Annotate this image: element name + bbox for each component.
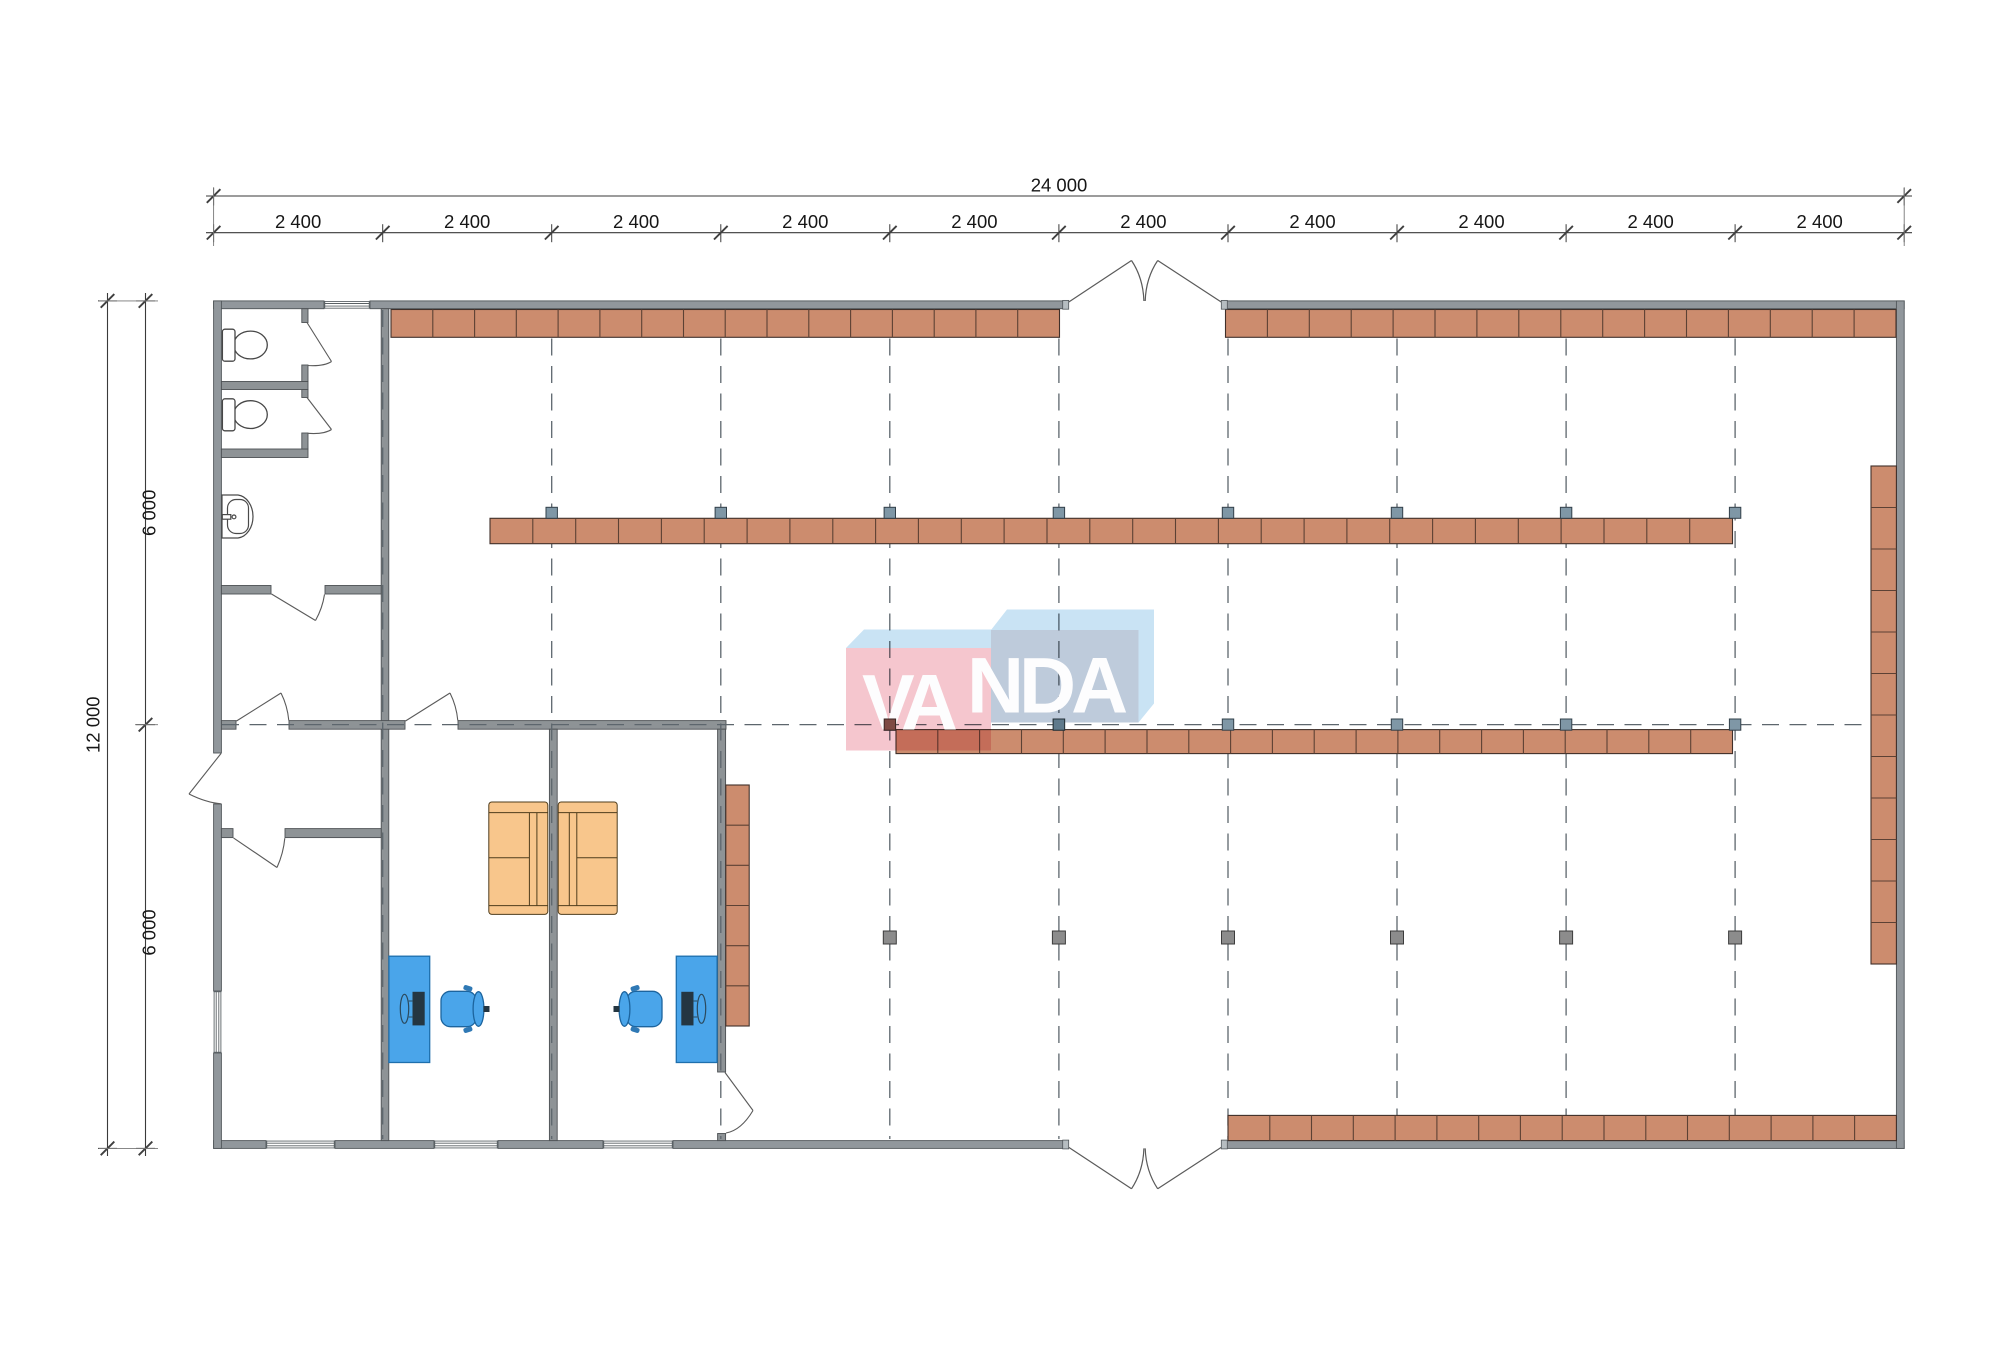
svg-text:2 400: 2 400: [1289, 211, 1335, 232]
svg-text:2 400: 2 400: [1627, 211, 1673, 232]
svg-text:6 000: 6 000: [139, 490, 160, 536]
svg-text:2 400: 2 400: [275, 211, 321, 232]
svg-text:2 400: 2 400: [1797, 211, 1843, 232]
svg-text:2 400: 2 400: [613, 211, 659, 232]
svg-text:2 400: 2 400: [951, 211, 997, 232]
svg-text:NDA: NDA: [967, 641, 1126, 730]
svg-text:2 400: 2 400: [1458, 211, 1504, 232]
svg-text:2 400: 2 400: [782, 211, 828, 232]
svg-text:2 400: 2 400: [444, 211, 490, 232]
svg-text:12 000: 12 000: [83, 696, 104, 753]
svg-text:2 400: 2 400: [1120, 211, 1166, 232]
svg-text:6 000: 6 000: [139, 909, 160, 955]
svg-text:VA: VA: [862, 658, 956, 747]
svg-text:24 000: 24 000: [1031, 175, 1088, 196]
